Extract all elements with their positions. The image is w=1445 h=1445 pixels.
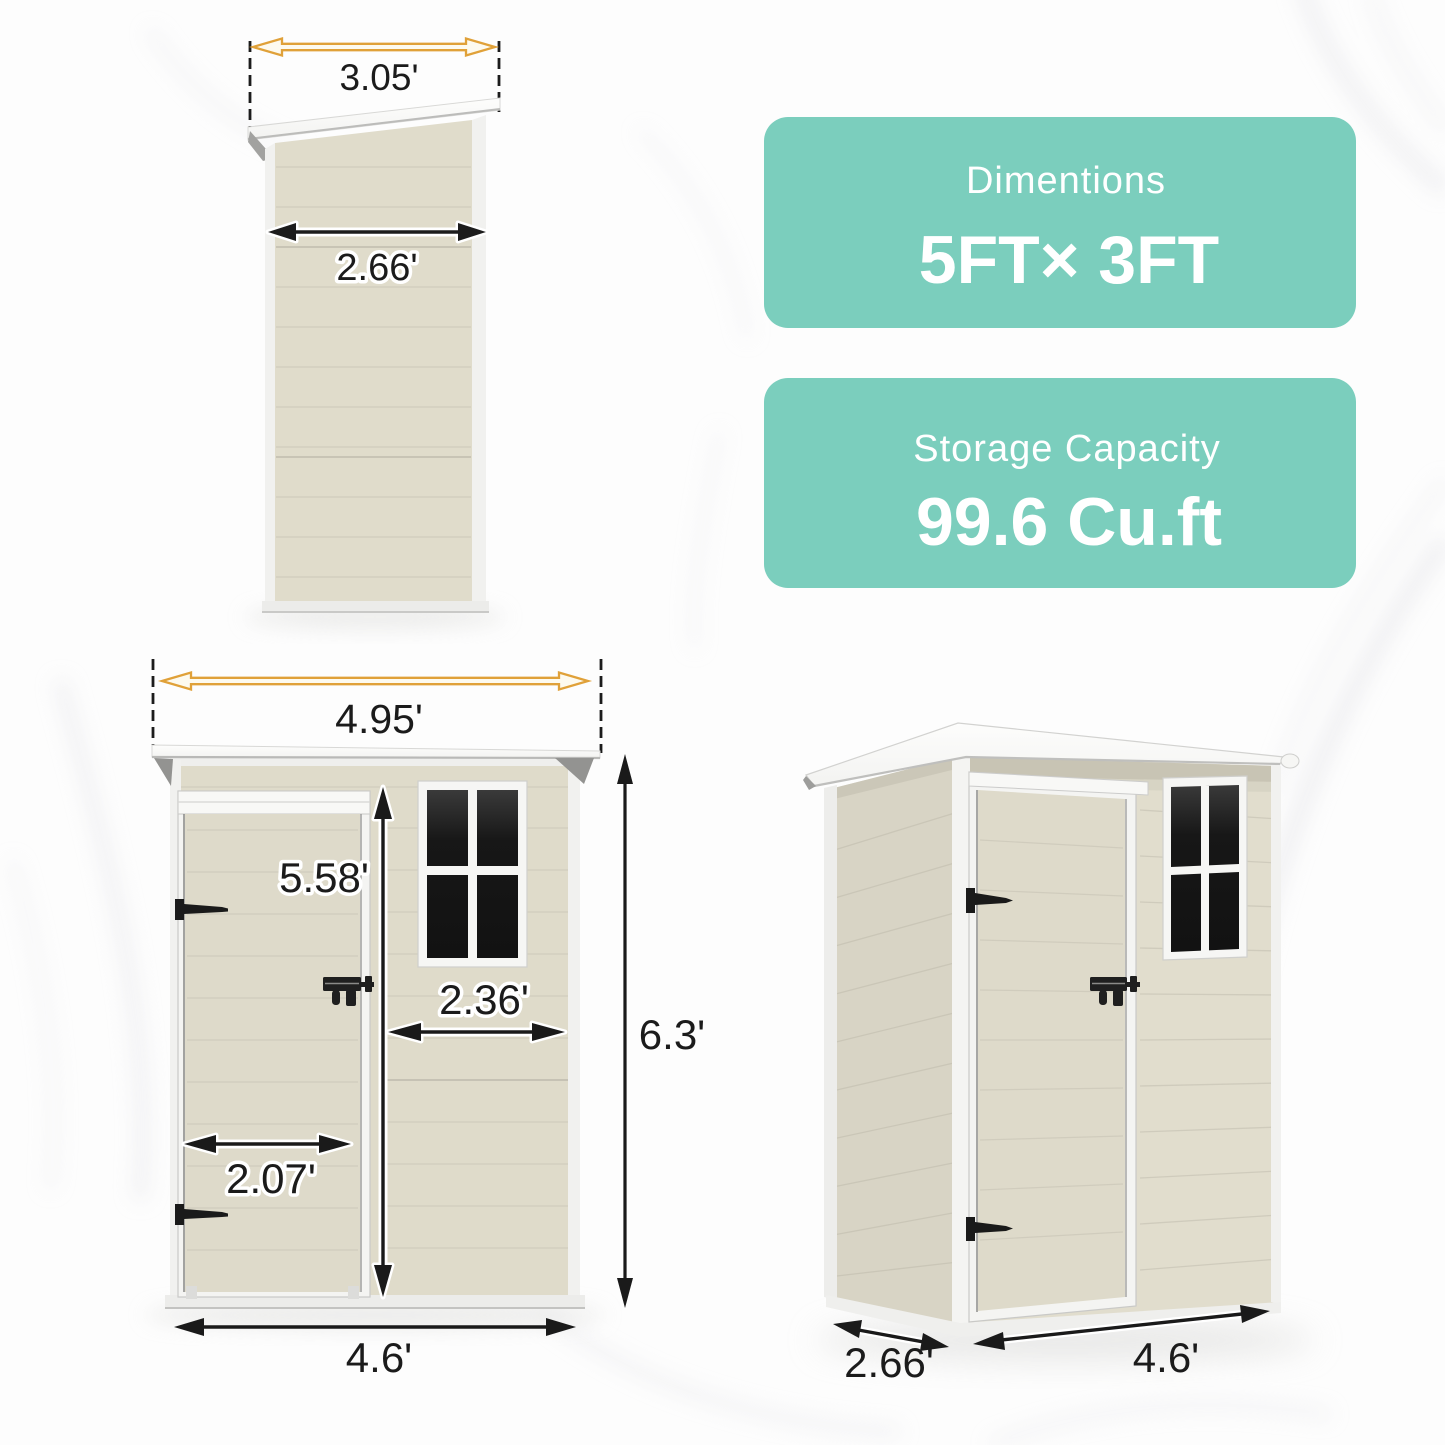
svg-text:5.58': 5.58' (279, 854, 369, 901)
svg-text:4.6': 4.6' (346, 1334, 412, 1381)
svg-text:Storage Capacity: Storage Capacity (913, 428, 1221, 470)
svg-text:4.6': 4.6' (1133, 1334, 1199, 1381)
svg-text:6.3': 6.3' (639, 1011, 705, 1058)
svg-text:2.36': 2.36' (439, 976, 529, 1023)
svg-text:99.6 Cu.ft: 99.6 Cu.ft (916, 484, 1222, 560)
svg-text:4.95': 4.95' (335, 696, 423, 742)
svg-text:2.66': 2.66' (336, 247, 417, 289)
svg-text:5FT× 3FT: 5FT× 3FT (919, 222, 1219, 298)
svg-text:2.66': 2.66' (844, 1339, 934, 1386)
svg-text:3.05': 3.05' (339, 57, 418, 98)
svg-text:Dimentions: Dimentions (966, 160, 1166, 202)
svg-text:2.07': 2.07' (226, 1155, 316, 1202)
